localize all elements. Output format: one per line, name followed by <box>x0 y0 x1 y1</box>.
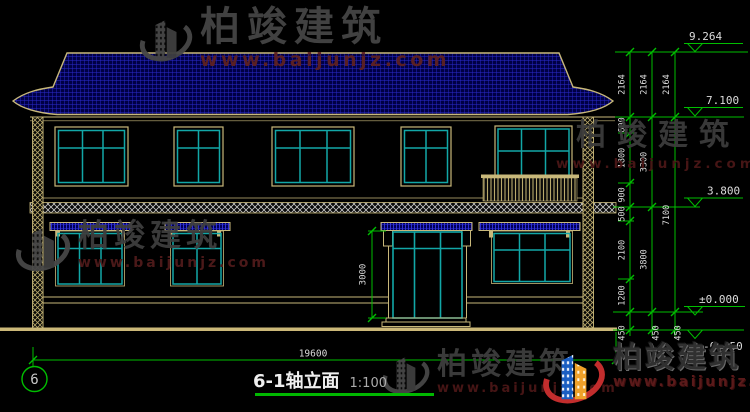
level-7100: 7.100 <box>706 94 739 107</box>
level-m0450: -0.450 <box>703 340 743 353</box>
roof <box>13 53 613 115</box>
window-2f-3 <box>272 127 354 186</box>
dim-450-c2: 450 <box>652 325 662 340</box>
window-2f-2 <box>174 127 223 186</box>
level-3800: 3.800 <box>707 185 740 198</box>
entrance-door <box>382 232 470 327</box>
drawing-scale-text: 1:100 <box>350 376 387 391</box>
drawing-title-text: 6-1轴立面 <box>253 371 340 392</box>
left-column <box>33 117 44 330</box>
window-2f-4 <box>401 127 451 186</box>
dim-2164-c3: 2164 <box>662 74 672 94</box>
level-9264: 9.264 <box>689 30 722 43</box>
dim-1800: 1800 <box>618 148 628 168</box>
dim-3000: 3000 <box>359 264 369 286</box>
dim-450-c3: 450 <box>674 325 684 340</box>
dim-1200: 1200 <box>618 285 628 305</box>
dim-3300: 3300 <box>640 152 650 172</box>
title-underline <box>255 393 434 397</box>
window-1f-1 <box>56 231 125 286</box>
axis-bubble-number: 6 <box>30 372 38 388</box>
level-0000: ±0.000 <box>699 293 739 306</box>
drawing-title: 6-1轴立面1:100 <box>253 367 387 393</box>
dim-2164-c2: 2164 <box>640 74 650 94</box>
dim-2100: 2100 <box>618 240 628 260</box>
dim-2164-c1: 2164 <box>618 74 628 94</box>
dim-500: 500 <box>618 206 628 221</box>
dim-900: 900 <box>618 187 628 202</box>
level-texts: 9.264 7.100 3.800 ±0.000 -0.450 <box>689 30 743 353</box>
dim-3800: 3800 <box>640 249 650 269</box>
window-2f-1 <box>55 127 128 186</box>
elevation-drawing: 2164 600 1800 900 500 2100 1200 450 2164… <box>0 0 750 412</box>
belt-course <box>30 203 616 214</box>
window-1f-2 <box>171 231 224 286</box>
balcony-railing <box>481 175 579 202</box>
dim-450-c1: 450 <box>618 325 628 340</box>
balcony-door <box>495 126 572 176</box>
ground-line <box>0 328 617 332</box>
dim-7100: 7100 <box>662 205 672 225</box>
window-1f-3 <box>492 231 573 284</box>
cad-canvas: 2164 600 1800 900 500 2100 1200 450 2164… <box>0 0 750 412</box>
dim-600: 600 <box>618 117 628 132</box>
dim-19600: 19600 <box>299 349 328 360</box>
right-column <box>583 117 594 330</box>
